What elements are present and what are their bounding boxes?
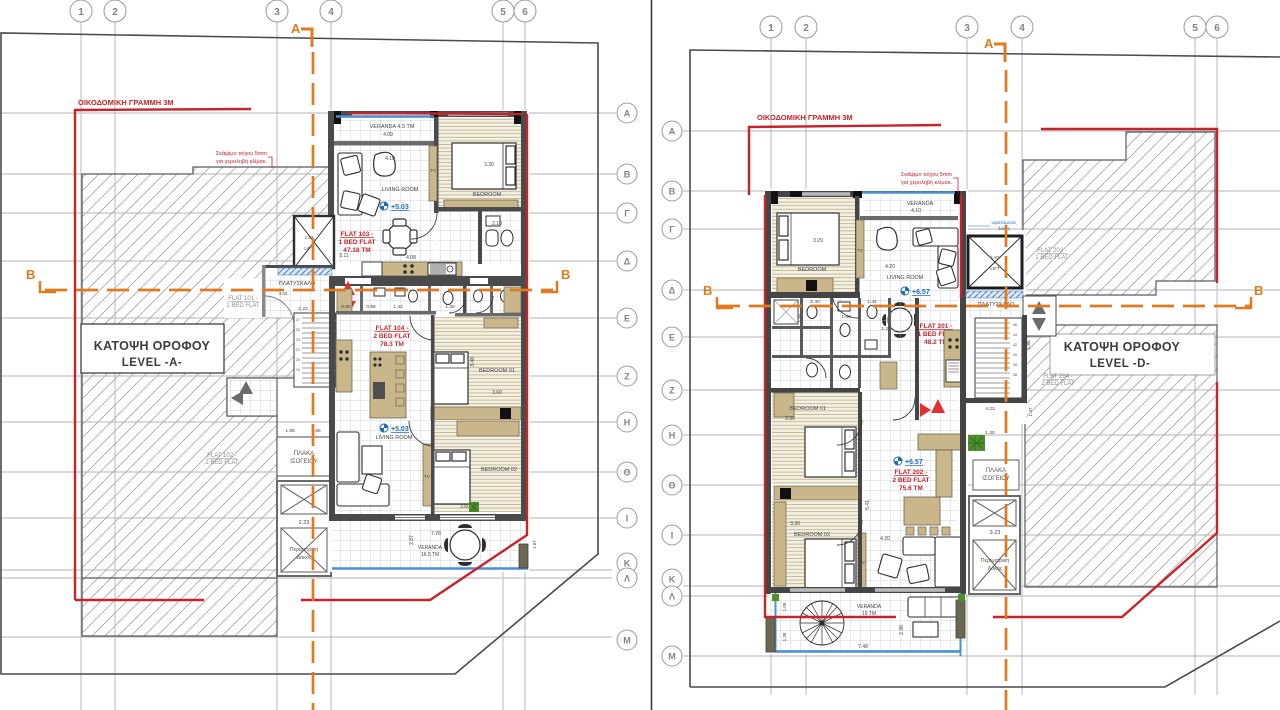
svg-text:B: B bbox=[703, 283, 712, 298]
svg-text:BEDROOM: BEDROOM bbox=[798, 267, 827, 273]
svg-text:21: 21 bbox=[296, 348, 300, 352]
svg-text:2.38: 2.38 bbox=[899, 625, 905, 635]
svg-text:E: E bbox=[669, 333, 675, 343]
svg-text:VERANDA: VERANDA bbox=[857, 604, 882, 610]
svg-text:38: 38 bbox=[1013, 373, 1017, 377]
svg-text:1.87: 1.87 bbox=[532, 540, 537, 549]
svg-text:1 BED FLAT: 1 BED FLAT bbox=[226, 303, 260, 309]
svg-text:ΠΛΑΚΑ: ΠΛΑΚΑ bbox=[986, 468, 1006, 474]
svg-text:BEDROOM 02: BEDROOM 02 bbox=[794, 532, 830, 538]
svg-text:1 BED FLAT: 1 BED FLAT bbox=[338, 239, 375, 246]
svg-text:FLAT 202 -: FLAT 202 - bbox=[895, 469, 928, 476]
svg-text:Θ: Θ bbox=[668, 481, 675, 491]
svg-text:LIFT: LIFT bbox=[990, 266, 1000, 271]
svg-text:2: 2 bbox=[112, 7, 118, 18]
svg-text:2.87: 2.87 bbox=[409, 535, 415, 545]
svg-text:FLAT 203 -: FLAT 203 - bbox=[1037, 248, 1066, 254]
svg-text:1.47: 1.47 bbox=[1028, 407, 1034, 417]
svg-text:4.23: 4.23 bbox=[985, 406, 995, 412]
svg-text:Θ: Θ bbox=[623, 468, 630, 478]
svg-text:4.20: 4.20 bbox=[885, 264, 895, 270]
svg-text:LIVING ROOM: LIVING ROOM bbox=[376, 435, 413, 441]
svg-text:4.09: 4.09 bbox=[383, 132, 393, 138]
svg-text:Περιμετρική: Περιμετρική bbox=[981, 557, 1010, 564]
svg-text:4: 4 bbox=[328, 7, 334, 18]
svg-text:Δοκός: Δοκός bbox=[987, 565, 1002, 572]
svg-text:1: 1 bbox=[78, 7, 84, 18]
svg-text:B: B bbox=[624, 170, 631, 180]
svg-text:Δ: Δ bbox=[669, 286, 676, 296]
svg-text:16.5 TM: 16.5 TM bbox=[421, 552, 439, 558]
svg-text:19: 19 bbox=[296, 368, 300, 372]
svg-text:46: 46 bbox=[1013, 323, 1017, 327]
svg-text:ΠΛΑΤΥΣΚΑΛΟ: ΠΛΑΤΥΣΚΑΛΟ bbox=[279, 281, 316, 287]
svg-text:1.94: 1.94 bbox=[797, 313, 803, 323]
svg-text:4: 4 bbox=[1019, 23, 1025, 34]
svg-text:2 BED FLAT: 2 BED FLAT bbox=[892, 477, 929, 484]
svg-text:5: 5 bbox=[1192, 23, 1198, 34]
svg-text:H: H bbox=[624, 418, 631, 428]
svg-text:LEVEL -A-: LEVEL -A- bbox=[122, 357, 183, 369]
svg-text:3.30: 3.30 bbox=[790, 521, 800, 527]
svg-text:0.95: 0.95 bbox=[366, 304, 376, 310]
svg-text:TV: TV bbox=[430, 168, 436, 173]
svg-text:3.23: 3.23 bbox=[990, 530, 1001, 536]
svg-text:+6.57: +6.57 bbox=[905, 459, 923, 466]
svg-text:5: 5 bbox=[500, 7, 506, 18]
svg-text:δοκός: δοκός bbox=[998, 225, 1011, 231]
svg-text:39: 39 bbox=[1013, 363, 1017, 367]
svg-text:H: H bbox=[669, 431, 676, 441]
svg-text:για χεροληβή κλίμακ.: για χεροληβή κλίμακ. bbox=[901, 179, 952, 186]
svg-text:LIVING ROOM: LIVING ROOM bbox=[382, 187, 419, 193]
svg-text:Γ: Γ bbox=[669, 225, 675, 235]
svg-text:1.38: 1.38 bbox=[782, 632, 787, 641]
svg-text:1.44: 1.44 bbox=[867, 299, 877, 305]
svg-text:1.43: 1.43 bbox=[393, 304, 403, 310]
svg-text:2.40: 2.40 bbox=[810, 299, 820, 305]
svg-text:M: M bbox=[668, 652, 676, 662]
svg-text:I: I bbox=[671, 531, 674, 541]
svg-text:2.23: 2.23 bbox=[299, 520, 310, 526]
svg-text:B: B bbox=[669, 187, 676, 197]
svg-text:1.40: 1.40 bbox=[445, 304, 455, 310]
svg-text:FLAT 101 -: FLAT 101 - bbox=[228, 296, 257, 302]
svg-text:3.29: 3.29 bbox=[813, 238, 823, 244]
svg-text:A: A bbox=[984, 36, 994, 51]
svg-text:7.78: 7.78 bbox=[431, 531, 441, 537]
svg-text:TV: TV bbox=[857, 248, 863, 253]
svg-text:A: A bbox=[624, 109, 631, 119]
svg-text:VERANDA 4.5 TM: VERANDA 4.5 TM bbox=[370, 124, 415, 130]
svg-text:3.60: 3.60 bbox=[492, 390, 502, 396]
svg-text:M: M bbox=[623, 636, 631, 646]
svg-text:25: 25 bbox=[296, 328, 300, 332]
svg-text:7.48: 7.48 bbox=[858, 644, 868, 650]
svg-text:42: 42 bbox=[1013, 343, 1017, 347]
svg-text:Σκάψιμο τοίχου 5mm: Σκάψιμο τοίχου 5mm bbox=[216, 150, 268, 157]
svg-text:4.10: 4.10 bbox=[911, 208, 921, 214]
svg-text:40: 40 bbox=[1013, 353, 1017, 357]
svg-text:TV: TV bbox=[424, 474, 430, 479]
svg-text:VERANDA: VERANDA bbox=[418, 545, 443, 551]
svg-text:B: B bbox=[26, 267, 35, 282]
svg-text:2.23: 2.23 bbox=[298, 306, 308, 312]
svg-text:2 BED FLAT: 2 BED FLAT bbox=[205, 460, 239, 466]
svg-text:1.58: 1.58 bbox=[285, 428, 295, 434]
svg-text:+5.03: +5.03 bbox=[391, 204, 409, 211]
svg-text:Z: Z bbox=[624, 372, 630, 382]
svg-text:BEDROOM: BEDROOM bbox=[473, 192, 502, 198]
svg-text:υφιστάμενος: υφιστάμενος bbox=[992, 219, 1018, 225]
svg-text:3.60: 3.60 bbox=[460, 504, 470, 510]
svg-text:VERANDA: VERANDA bbox=[907, 201, 934, 207]
svg-text:BEDROOM 01: BEDROOM 01 bbox=[790, 406, 826, 412]
svg-text:Δοκός: Δοκός bbox=[296, 554, 311, 561]
svg-text:4.08: 4.08 bbox=[406, 255, 416, 261]
svg-text:4.10: 4.10 bbox=[385, 156, 395, 162]
svg-text:FLAT 103 -: FLAT 103 - bbox=[341, 231, 374, 238]
svg-text:6: 6 bbox=[522, 7, 528, 18]
svg-text:Δ: Δ bbox=[624, 257, 631, 267]
svg-text:ΚΑΤΟΨΗ ΟΡΟΦΟΥ: ΚΑΤΟΨΗ ΟΡΟΦΟΥ bbox=[94, 339, 211, 353]
svg-text:Λ: Λ bbox=[669, 592, 675, 602]
svg-text:2: 2 bbox=[803, 23, 809, 34]
svg-text:LEVEL -D-: LEVEL -D- bbox=[1090, 358, 1151, 370]
svg-text:FLAT 201 -: FLAT 201 - bbox=[920, 323, 953, 330]
svg-text:1.20: 1.20 bbox=[881, 326, 891, 332]
svg-text:3.30: 3.30 bbox=[785, 416, 795, 422]
svg-text:23: 23 bbox=[296, 338, 300, 342]
svg-text:E: E bbox=[624, 314, 630, 324]
svg-text:ΟΙΚΟΔΟΜΙΚΗ ΓΡΑΜΜΗ 3Μ: ΟΙΚΟΔΟΜΙΚΗ ΓΡΑΜΜΗ 3Μ bbox=[78, 98, 174, 107]
svg-text:6: 6 bbox=[1214, 23, 1220, 34]
svg-text:Σκάψιμο τοίχου 5mm: Σκάψιμο τοίχου 5mm bbox=[901, 171, 953, 178]
svg-text:B: B bbox=[561, 267, 570, 282]
svg-text:+5.03: +5.03 bbox=[391, 426, 409, 433]
svg-text:I: I bbox=[626, 514, 629, 524]
svg-text:1 BED FLAT: 1 BED FLAT bbox=[1035, 255, 1069, 261]
svg-text:75.6 TM: 75.6 TM bbox=[899, 485, 923, 492]
svg-text:5.11: 5.11 bbox=[339, 253, 349, 259]
svg-text:3: 3 bbox=[274, 7, 280, 18]
svg-text:ΟΙΚΟΔΟΜΙΚΗ ΓΡΑΜΜΗ 3Μ: ΟΙΚΟΔΟΜΙΚΗ ΓΡΑΜΜΗ 3Μ bbox=[757, 113, 853, 122]
svg-text:ΠΛΑΚΑ: ΠΛΑΚΑ bbox=[294, 451, 314, 457]
svg-text:0.60: 0.60 bbox=[341, 304, 351, 310]
svg-text:1.83: 1.83 bbox=[991, 255, 1000, 260]
svg-text:1.85: 1.85 bbox=[1026, 340, 1032, 350]
svg-text:FLAT 204 -: FLAT 204 - bbox=[1043, 374, 1072, 380]
svg-text:Λ: Λ bbox=[624, 574, 630, 584]
svg-text:A: A bbox=[291, 21, 301, 36]
svg-text:ΚΑΤΟΨΗ ΟΡΟΦΟΥ: ΚΑΤΟΨΗ ΟΡΟΦΟΥ bbox=[1064, 340, 1181, 354]
svg-text:Γ: Γ bbox=[624, 209, 630, 219]
svg-text:5.41: 5.41 bbox=[865, 500, 871, 510]
svg-text:Z: Z bbox=[669, 386, 675, 396]
svg-text:για χεροληβή κλίμακ.: για χεροληβή κλίμακ. bbox=[216, 158, 267, 165]
svg-text:A: A bbox=[669, 127, 676, 137]
svg-text:BEDROOM 01: BEDROOM 01 bbox=[479, 368, 515, 374]
svg-text:3.63: 3.63 bbox=[279, 291, 288, 296]
svg-text:2.10: 2.10 bbox=[492, 221, 502, 227]
svg-text:1.00: 1.00 bbox=[782, 602, 787, 611]
svg-text:3: 3 bbox=[964, 23, 970, 34]
svg-text:K: K bbox=[669, 575, 676, 585]
svg-text:B: B bbox=[1254, 283, 1263, 298]
svg-text:3.30: 3.30 bbox=[484, 162, 494, 168]
svg-text:K: K bbox=[624, 559, 631, 569]
svg-text:44: 44 bbox=[1013, 333, 1017, 337]
svg-text:1.30: 1.30 bbox=[985, 430, 995, 436]
svg-text:27: 27 bbox=[296, 318, 300, 322]
svg-text:4.20: 4.20 bbox=[880, 536, 890, 542]
svg-text:+6.57: +6.57 bbox=[912, 289, 930, 296]
svg-text:LIVING ROOM: LIVING ROOM bbox=[887, 275, 924, 281]
svg-text:3.48: 3.48 bbox=[470, 357, 476, 367]
svg-text:2 BED FLAT: 2 BED FLAT bbox=[1041, 381, 1075, 387]
svg-text:20: 20 bbox=[296, 358, 300, 362]
svg-text:BEDROOM 02: BEDROOM 02 bbox=[481, 467, 517, 473]
svg-text:FLAT 102 -: FLAT 102 - bbox=[207, 453, 236, 459]
svg-text:1: 1 bbox=[768, 23, 774, 34]
